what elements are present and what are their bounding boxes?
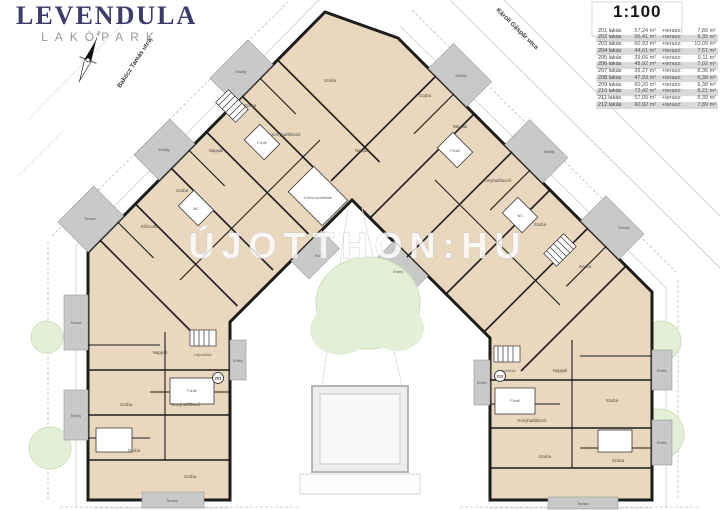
watermark: ÚJOTTHON:HU bbox=[189, 224, 528, 266]
courtyard-steps bbox=[300, 474, 420, 494]
room-label: Nappali bbox=[209, 148, 224, 153]
room-label: Nappali bbox=[355, 148, 370, 153]
balcony-label: Erkély bbox=[71, 414, 81, 418]
balcony-label: Erkély bbox=[543, 149, 554, 154]
room-label: Fürdő bbox=[450, 149, 459, 153]
room-label: WC bbox=[193, 207, 199, 211]
balcony-label: Erkély bbox=[455, 73, 466, 78]
unit-name: 212 lakás bbox=[596, 102, 628, 109]
stairwell-label: Lépcsőház bbox=[194, 353, 212, 357]
tree-icon bbox=[31, 321, 63, 353]
balcony-label: Erkély bbox=[657, 369, 667, 373]
room-label: Szoba bbox=[120, 402, 133, 407]
street-label-left: Bakócz Tamás utca bbox=[116, 37, 154, 90]
balcony-label: Erkély bbox=[233, 359, 243, 363]
room-label: Előszoba bbox=[141, 224, 159, 229]
room-label: Konyha/Étkező bbox=[483, 178, 513, 183]
floorplan-sheet: Szoba Nappali Konyha/Étkező Szoba Előszo… bbox=[0, 0, 720, 510]
room-label: Szoba bbox=[419, 93, 432, 98]
balcony-label: Erkély bbox=[158, 147, 169, 152]
room-label: Szoba bbox=[176, 188, 189, 193]
room-label: Szoba bbox=[324, 78, 337, 83]
room-label: Szoba bbox=[539, 454, 552, 459]
room-label: Nappali bbox=[553, 368, 568, 373]
room-label: Konyha/Étkező bbox=[172, 402, 202, 407]
scale-label: 1:100 bbox=[613, 2, 661, 22]
unit-markers: 201 212 bbox=[213, 371, 506, 384]
terrace-label: Terasz bbox=[166, 498, 178, 503]
balcony-label: Erkély bbox=[477, 381, 487, 385]
unit-marker-label: 201 bbox=[215, 376, 222, 381]
balcony-label: Erkély bbox=[235, 69, 246, 74]
terrace-label: Terasz bbox=[71, 321, 82, 325]
logo-subtitle: LAKÓPARK bbox=[16, 30, 186, 44]
logo-title: LEVENDULA bbox=[16, 2, 186, 29]
terrace-label: Terasz bbox=[577, 501, 589, 506]
unit-marker-label: 212 bbox=[497, 374, 504, 379]
room-label: WC bbox=[517, 214, 523, 218]
balcony-label: Erkély bbox=[657, 441, 667, 445]
room-label: Nappali bbox=[453, 124, 468, 129]
balcony-label: Erkély bbox=[393, 270, 403, 274]
room-label: Szoba bbox=[534, 222, 547, 227]
room-label: Konyha/Étkező bbox=[272, 132, 302, 137]
room-label: Szoba bbox=[579, 264, 592, 269]
room-label: Közös közlekedő bbox=[304, 196, 331, 200]
room-label: Szoba bbox=[606, 398, 619, 403]
table-row: 212 lakás60,92 m²+terasz:7,89 m² bbox=[596, 102, 718, 109]
logo: LEVENDULA LAKÓPARK bbox=[16, 2, 186, 44]
room-label: Fürdő bbox=[187, 389, 196, 393]
room-label: Fürdő bbox=[510, 399, 519, 403]
apartment-table: 201 lakás57,24 m²+terasz:7,89 m² 202 lak… bbox=[596, 28, 718, 109]
room-label: Szoba bbox=[128, 448, 141, 453]
room-label: Konyha/Étkező bbox=[518, 418, 548, 423]
room-label: Szoba bbox=[244, 103, 257, 108]
unit-area: 60,92 m² bbox=[628, 102, 658, 109]
terrace-prefix: +terasz: bbox=[658, 102, 688, 109]
terrace-label: Terasz bbox=[84, 216, 96, 221]
courtyard-structure-inner bbox=[320, 394, 400, 464]
balcony-label: Erkély bbox=[618, 225, 629, 230]
room-label: Fürdő bbox=[257, 141, 266, 145]
room-label: Szoba bbox=[612, 458, 625, 463]
room-label: Szoba bbox=[184, 474, 197, 479]
terrace-area: 7,89 m² bbox=[688, 102, 718, 109]
room-label: Nappali bbox=[153, 350, 168, 355]
